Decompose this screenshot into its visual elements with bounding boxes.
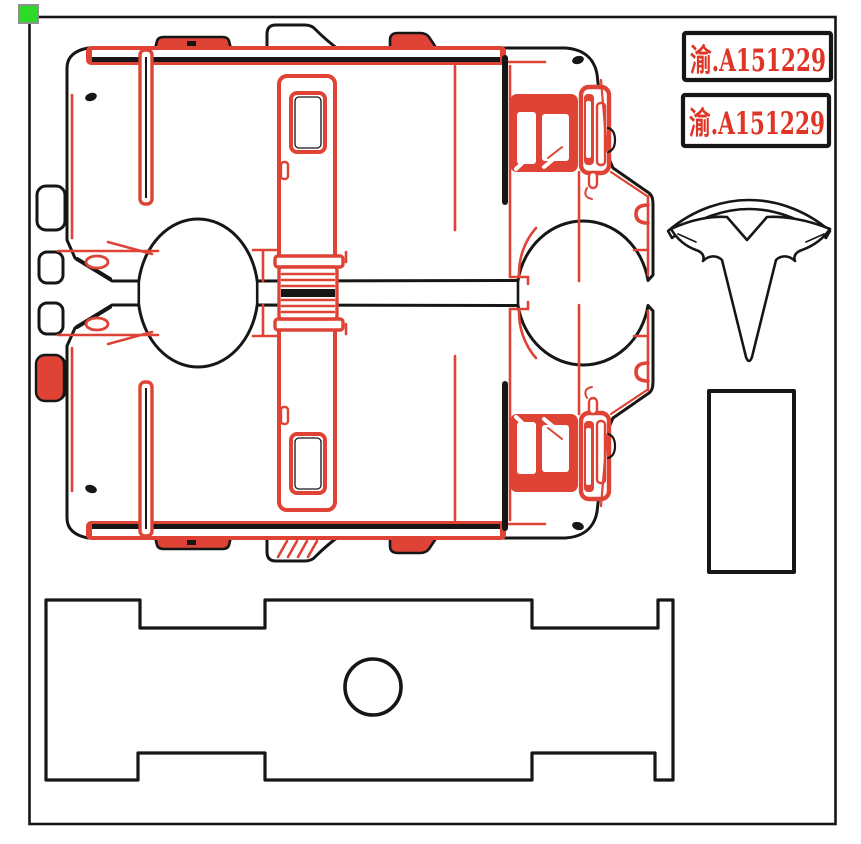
tesla-logo[interactable] (668, 200, 830, 361)
cad-layout-canvas: 渝.A151229 渝.A151229 (0, 0, 861, 844)
plate-text: 渝.A151229 (689, 106, 825, 142)
van-profile-bottom[interactable] (37, 302, 653, 561)
base-plate-hole (345, 659, 401, 715)
van-profile-top[interactable] (37, 25, 653, 284)
base-plate[interactable] (46, 600, 673, 780)
license-plate-2[interactable]: 渝.A151229 (683, 95, 829, 146)
license-plate-1[interactable]: 渝.A151229 (684, 33, 831, 80)
rectangular-panel[interactable] (709, 391, 794, 572)
red-bumper-fill (36, 355, 64, 401)
center-step[interactable] (279, 267, 337, 319)
plate-text: 渝.A151229 (690, 43, 826, 79)
selection-handle[interactable] (19, 5, 38, 23)
tesla-logo-t (671, 217, 830, 361)
